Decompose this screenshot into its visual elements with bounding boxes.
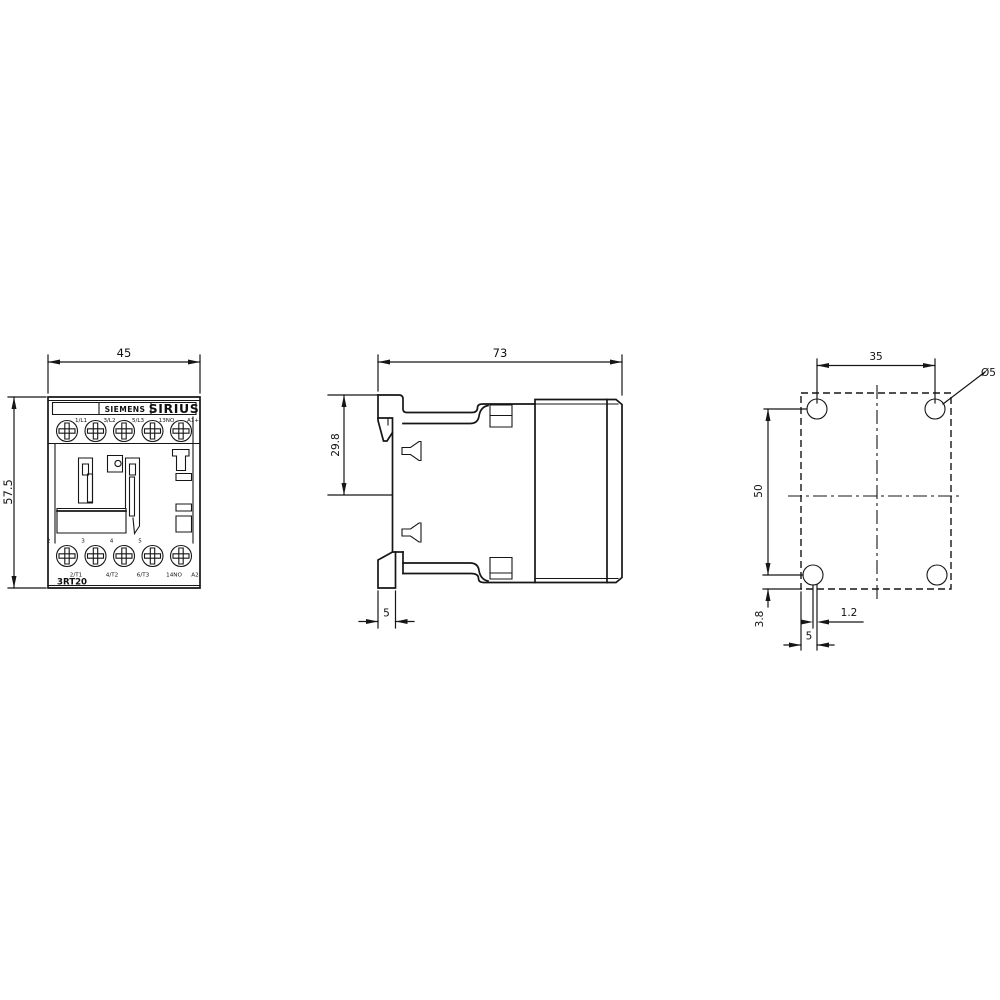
brand-label: SIEMENS bbox=[105, 405, 146, 414]
pole-number-4: 5 bbox=[138, 539, 142, 545]
mounting-lug-bottom bbox=[490, 558, 512, 580]
series-label: SIRIUS bbox=[149, 401, 200, 416]
side-flange-value: 5 bbox=[383, 608, 390, 620]
front-face-details bbox=[57, 450, 192, 534]
screw-icon bbox=[85, 421, 106, 442]
hole-offset-value: 1.2 bbox=[841, 607, 858, 619]
side-view: 73 29.8 bbox=[328, 346, 622, 628]
side-body-block bbox=[535, 400, 622, 583]
side-depth-value: 73 bbox=[493, 346, 508, 360]
terminal-label-top-1: 1/L1 bbox=[75, 418, 88, 424]
bottom-offset-value: 3.8 bbox=[754, 611, 766, 628]
front-width-value: 45 bbox=[117, 346, 132, 360]
side-clip-value: 29.8 bbox=[330, 433, 342, 456]
front-height-value: 57.5 bbox=[1, 479, 15, 505]
mounting-hole-bottom-right bbox=[927, 565, 947, 585]
hole-spacing-h-dimension: 35 bbox=[817, 351, 935, 403]
side-depth-dimension: 73 bbox=[378, 346, 622, 395]
din-rail-hook bbox=[378, 418, 393, 441]
front-height-dimension: 57.5 bbox=[1, 397, 46, 588]
pole-number-1: 2 bbox=[47, 539, 51, 545]
side-clip-dimension: 29.8 bbox=[328, 395, 393, 495]
dimension-drawing-page: SIEMENS SIRIUS 1/L1 3/L2 5/L3 13NO A1+ bbox=[0, 0, 1000, 1000]
terminal-label-bottom-2: 4/T2 bbox=[106, 573, 118, 579]
terminal-label-top-3: 5/L3 bbox=[132, 418, 145, 424]
terminal-label-top-4: 13NO bbox=[159, 418, 175, 424]
screw-icon bbox=[171, 421, 192, 442]
drill-pattern: 35 Ø5 50 3.8 1 bbox=[753, 351, 996, 650]
screw-icon bbox=[142, 546, 163, 567]
terminal-label-top-2: 3/L2 bbox=[103, 418, 115, 424]
edge-offset-value: 5 bbox=[806, 631, 813, 643]
mounting-hole-bottom-left bbox=[803, 565, 823, 585]
front-width-dimension: 45 bbox=[48, 346, 200, 393]
pole-number-2: 3 bbox=[81, 539, 85, 545]
screw-icon bbox=[114, 421, 135, 442]
bottom-offset-dimension: 3.8 bbox=[754, 589, 801, 627]
label-plate bbox=[57, 509, 126, 534]
snap-clip-top bbox=[402, 442, 421, 461]
bottom-flange bbox=[378, 552, 396, 588]
side-flange-dimension: 5 bbox=[359, 591, 414, 628]
screw-icon bbox=[114, 546, 135, 567]
hole-diameter-callout: Ø5 bbox=[943, 367, 996, 404]
hole-spacing-v-value: 50 bbox=[753, 484, 765, 497]
hole-diameter-value: Ø5 bbox=[981, 367, 996, 379]
terminal-label-bottom-3: 6/T3 bbox=[137, 573, 150, 579]
bottom-terminal-screws bbox=[57, 546, 192, 567]
screw-icon bbox=[171, 546, 192, 567]
front-body-outline bbox=[48, 397, 200, 588]
snap-clip-bottom bbox=[402, 523, 421, 542]
screw-icon bbox=[85, 546, 106, 567]
pole-number-3: 4 bbox=[110, 539, 114, 545]
hole-spacing-h-value: 35 bbox=[869, 351, 882, 363]
terminal-label-bottom-4: 14NO bbox=[166, 573, 182, 579]
dimension-drawing: SIEMENS SIRIUS 1/L1 3/L2 5/L3 13NO A1+ bbox=[0, 0, 1000, 1000]
screw-icon bbox=[57, 421, 78, 442]
screw-icon bbox=[142, 421, 163, 442]
screw-icon bbox=[57, 546, 78, 567]
hole-spacing-v-dimension: 50 bbox=[753, 409, 807, 575]
device-outline-dashed bbox=[801, 393, 951, 589]
side-profile bbox=[378, 395, 622, 588]
aux-tab bbox=[173, 450, 190, 471]
front-view: SIEMENS SIRIUS 1/L1 3/L2 5/L3 13NO A1+ bbox=[1, 346, 201, 588]
terminal-label-bottom-5: A2- bbox=[191, 573, 200, 579]
